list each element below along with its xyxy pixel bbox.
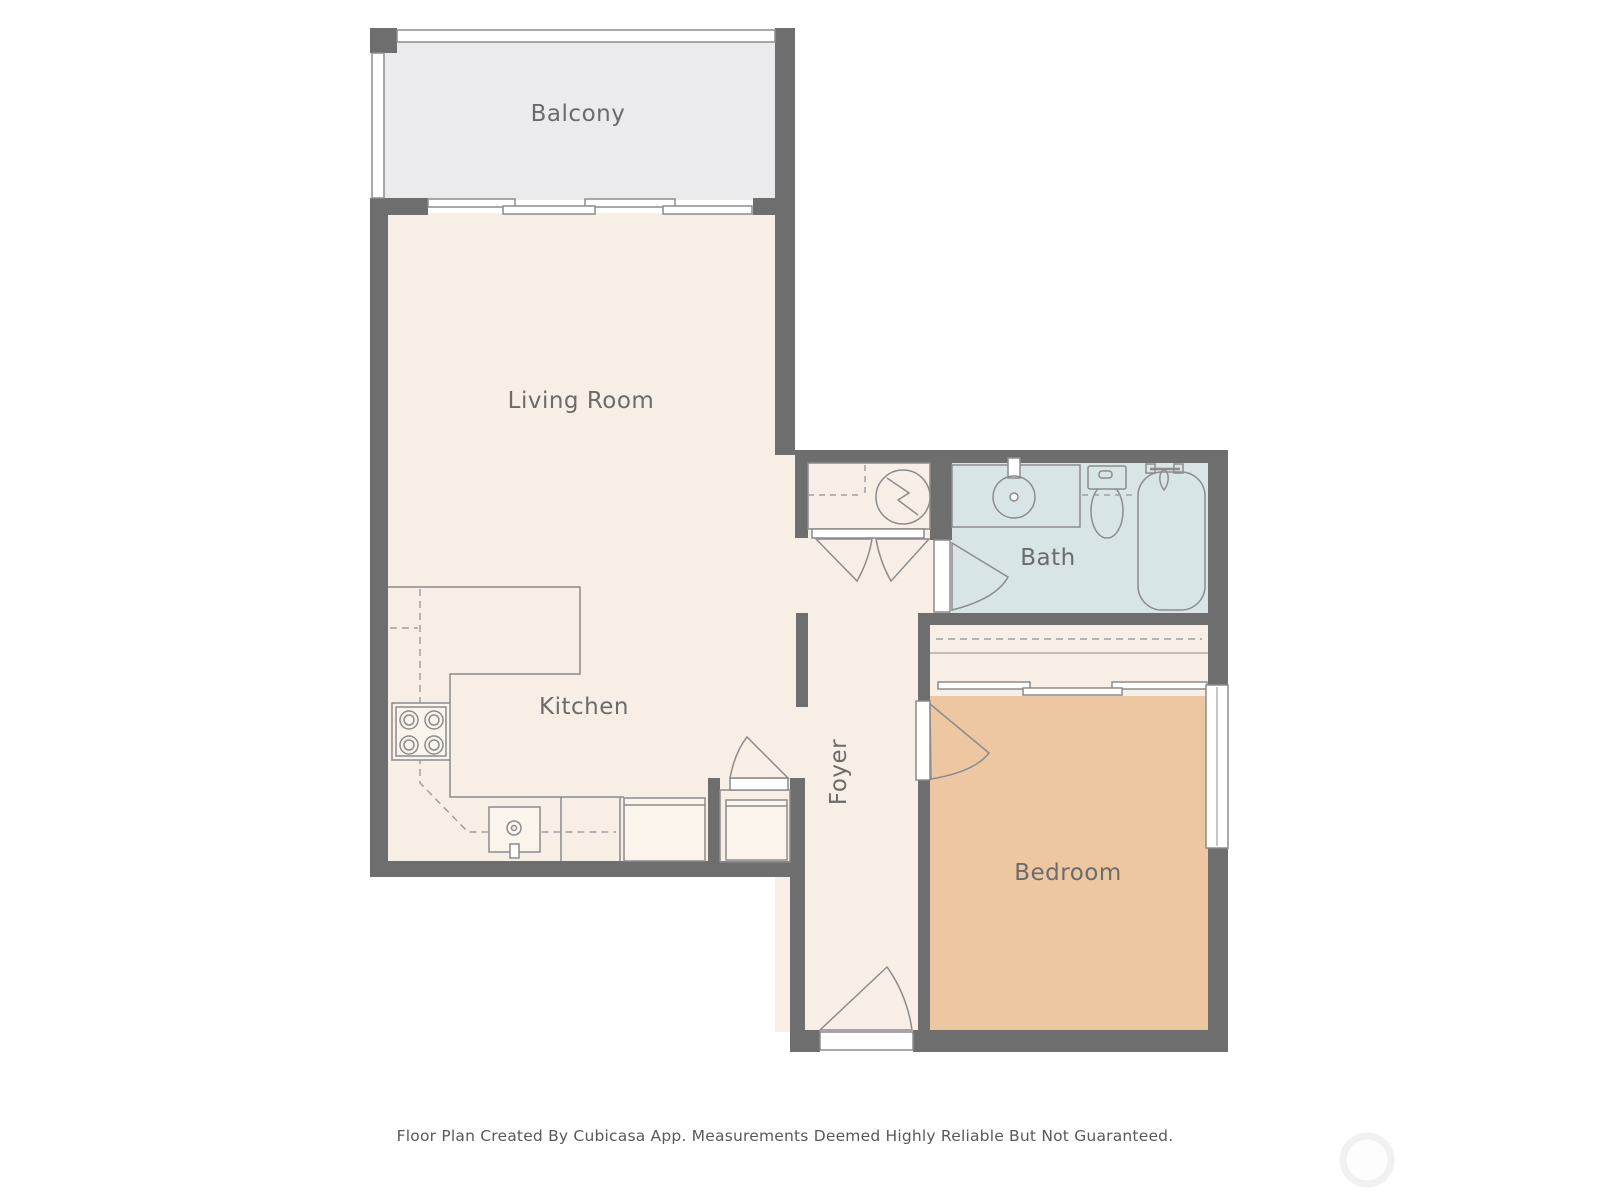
refrigerator <box>624 798 705 861</box>
vanity-faucet <box>1008 458 1020 478</box>
floor-plan-canvas: Balcony Living Room Kitchen Foyer Bath B… <box>0 0 1600 1200</box>
wall-segment <box>1208 848 1228 1052</box>
wall-segment <box>918 613 930 701</box>
kitchen-sink <box>489 807 540 858</box>
entry-threshold <box>820 1032 913 1050</box>
bath-door-jamb <box>934 540 950 612</box>
wall-segment <box>790 1030 820 1052</box>
sliding-panel <box>585 199 675 207</box>
wall-segment <box>918 613 1208 625</box>
wall-segment <box>930 455 952 540</box>
watermark-logo-circle <box>1343 1136 1391 1184</box>
bedroom-window <box>1206 685 1228 848</box>
stove-cooktop <box>392 703 450 760</box>
wall-segment <box>753 198 795 215</box>
pantry-door-threshold <box>730 778 788 790</box>
bathtub <box>1138 472 1205 610</box>
wall-segment <box>708 778 720 875</box>
wall-segment <box>775 28 795 215</box>
sliding-panel <box>1023 688 1122 695</box>
wall-segment <box>370 28 397 53</box>
balcony-label: Balcony <box>531 101 626 127</box>
wall-segment <box>918 780 930 1030</box>
foyer-label: Foyer <box>826 739 852 805</box>
vanity-drain <box>1010 493 1018 501</box>
sink-faucet <box>510 844 519 858</box>
toilet-bowl <box>1091 484 1123 538</box>
washer-appliance <box>726 800 787 860</box>
sliding-panel <box>1112 682 1207 689</box>
bedroom-door-jamb <box>916 701 930 780</box>
sliding-panel <box>428 199 515 207</box>
balcony-railing-top <box>397 30 775 42</box>
balcony-sliding-door <box>428 199 752 214</box>
utility-door-sill <box>812 529 924 538</box>
bath-label: Bath <box>1020 545 1075 571</box>
wall-segment <box>795 455 808 538</box>
wall-segment <box>790 778 805 1052</box>
sliding-panel <box>503 206 595 214</box>
living-kitchen-floor <box>388 213 775 863</box>
wall-stub <box>796 613 808 707</box>
wall-segment <box>1208 450 1228 685</box>
bedroom-label: Bedroom <box>1014 860 1122 886</box>
living-room-label: Living Room <box>508 388 655 414</box>
refrigerator-body <box>624 798 705 861</box>
wall-segment <box>370 198 388 877</box>
sliding-panel <box>663 206 752 214</box>
footer-disclaimer: Floor Plan Created By Cubicasa App. Meas… <box>397 1127 1174 1145</box>
floor-plan-page: Balcony Living Room Kitchen Foyer Bath B… <box>0 0 1600 1200</box>
wall-segment <box>370 861 708 877</box>
wall-segment <box>913 1030 1228 1052</box>
balcony-railing-left <box>372 53 384 198</box>
wall-segment <box>775 215 795 455</box>
sliding-panel <box>938 682 1030 689</box>
kitchen-label: Kitchen <box>539 694 629 720</box>
